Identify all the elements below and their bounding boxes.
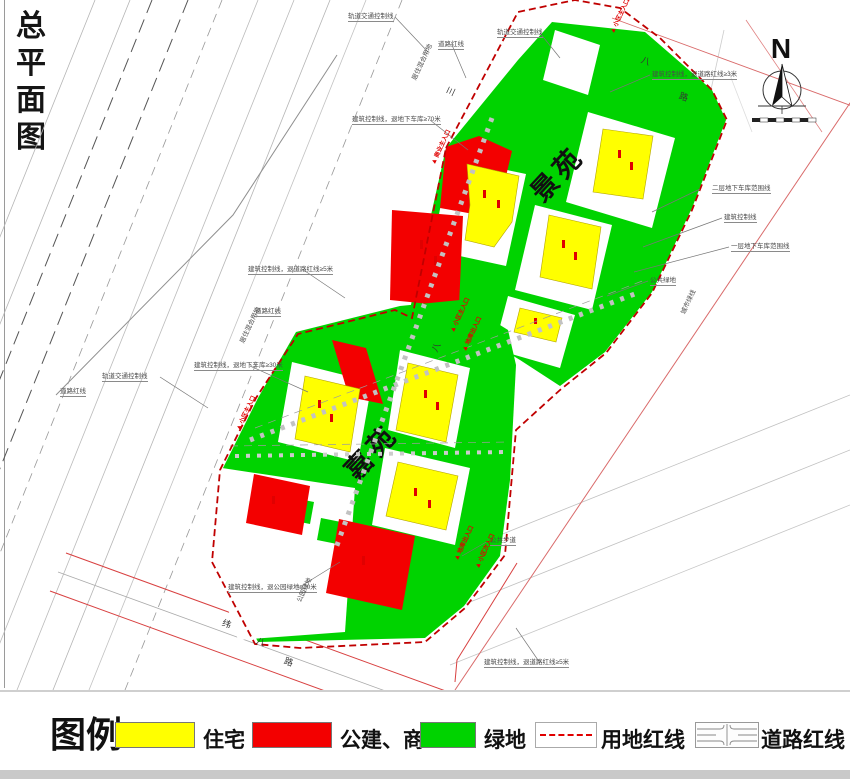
map-annotation: 建筑控制线	[724, 215, 757, 223]
map-annotation: 建筑控制线，退道路红线≥3米	[652, 72, 737, 80]
master-plan-map: 景苑	[0, 0, 850, 690]
jingyuan-residential-building	[593, 129, 653, 199]
map-annotation: 一层地下车库范围线	[731, 244, 790, 252]
map-annotation: 道路红线	[255, 309, 281, 317]
legend-label: 住宅	[203, 724, 245, 754]
site-red-line-swatch	[535, 722, 597, 748]
legend-label: 绿地	[484, 724, 526, 754]
road-red-line-swatch	[695, 722, 759, 748]
map-annotation: 轨道交通控制线	[348, 14, 394, 22]
red-dashed-line-icon	[540, 734, 592, 736]
map-annotation: 轨道交通控制线	[497, 30, 543, 38]
site-plan-page: 总平面图	[0, 0, 850, 779]
legend: 图例: 住宅 公建、商业 绿地 用地红线	[0, 690, 850, 772]
map-annotation: 公共绿地	[650, 278, 676, 286]
master-plan-drawing: 景苑	[0, 0, 850, 690]
legend-label: 用地红线	[601, 724, 685, 754]
jiayuan-residential-building	[295, 376, 360, 452]
map-annotation: 建筑控制线，退道路红线≥5米	[484, 660, 569, 668]
north-arrow: N	[758, 33, 806, 114]
map-annotation: 建筑控制线，退地下车库≥70米	[352, 117, 441, 125]
map-annotation: 建筑控制线，退道路红线≥5米	[248, 267, 333, 275]
legend-label: 道路红线	[761, 724, 845, 754]
residential-swatch	[115, 722, 195, 748]
commercial-swatch	[252, 722, 332, 748]
map-annotation: 建筑控制线，退地下车库≥30米	[194, 363, 283, 371]
green-space-swatch	[420, 722, 476, 748]
road-intersection-icon	[696, 723, 758, 747]
scale-bar	[752, 118, 816, 122]
bottom-gray-bar	[0, 770, 850, 779]
north-label: N	[771, 33, 791, 64]
map-annotation: 轨道交通控制线	[102, 374, 148, 382]
map-annotation: 道路红线	[438, 42, 464, 50]
map-annotation: 二层地下车库范围线	[712, 186, 771, 194]
jingyuan-residential-building	[540, 215, 601, 289]
map-annotation: 道路红线	[60, 389, 86, 397]
